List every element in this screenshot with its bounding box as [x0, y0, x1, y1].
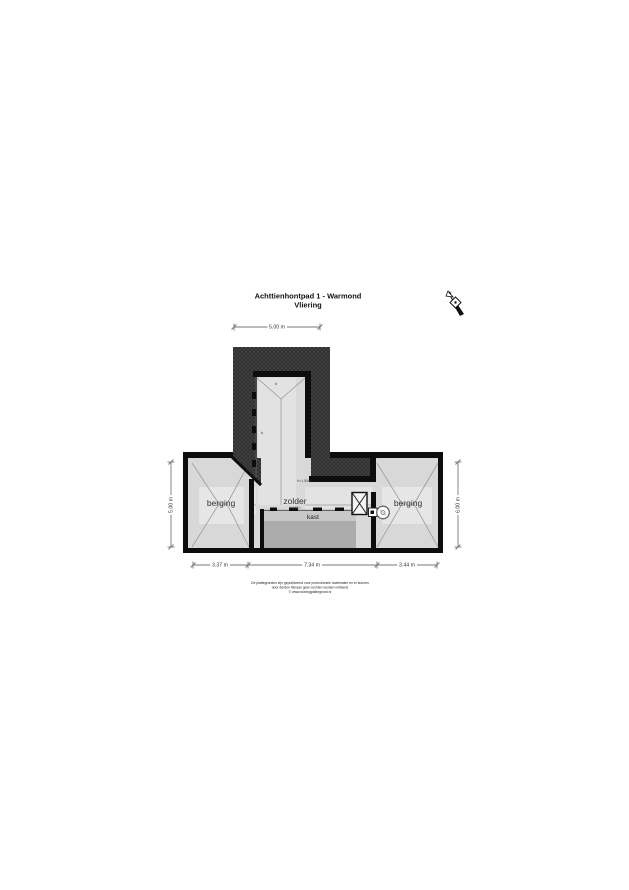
- room-label-zolder-sub: h=1.50m: [289, 506, 300, 509]
- boiler-icon: [377, 506, 390, 519]
- plan-subtitle: Vliering: [294, 301, 322, 310]
- disclaimer: De plattegronden zijn gepubliceerd voor …: [251, 581, 369, 595]
- mark-k-left: k: [261, 431, 263, 435]
- vent-box-icon: [369, 508, 378, 517]
- plan-title: Achttienhontpad 1 - Warmond: [255, 292, 362, 301]
- disclaimer-line-3: © www.woningplattegrond.nl: [251, 590, 369, 595]
- floorplan-drawing: [0, 0, 629, 890]
- north-label: N: [449, 291, 452, 295]
- dimension-bottom-left: 3.37 m: [210, 562, 229, 568]
- dimension-left: 5.00 m: [168, 495, 174, 514]
- room-label-kast: kast: [307, 513, 319, 520]
- dimension-bottom-right: 3.44 m: [397, 562, 416, 568]
- room-label-zolder: zolder: [283, 496, 306, 506]
- room-label-berging-left: berging: [207, 498, 235, 508]
- dimension-bottom-middle: 7.34 m: [302, 562, 321, 568]
- room-label-berging-right: berging: [394, 498, 422, 508]
- dimension-top: 5.00 m: [267, 324, 286, 330]
- floorplan-page: Achttienhontpad 1 - Warmond Vliering 5.0…: [0, 0, 629, 890]
- tower-room-light-strip: [258, 378, 296, 505]
- height-note: h=1.50m: [297, 479, 311, 483]
- mark-k-top: k: [275, 382, 277, 386]
- dimension-right: 6.00 m: [455, 495, 461, 514]
- shaft-icon: [352, 493, 367, 515]
